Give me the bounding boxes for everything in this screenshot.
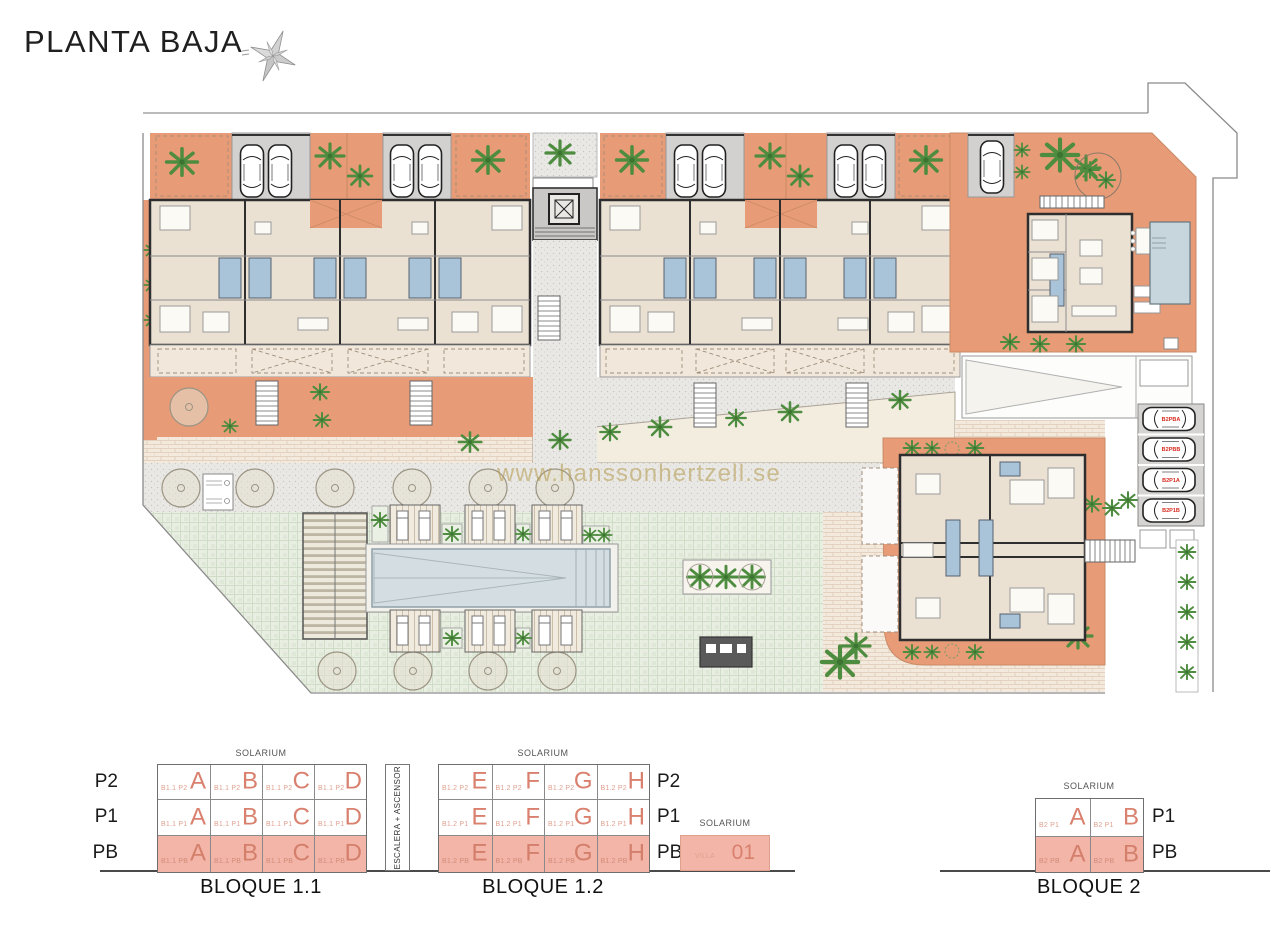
- unit-code: B1.2 P2: [496, 785, 522, 792]
- unit-cell-b12-p2-f: B1.2 P2F: [492, 765, 545, 799]
- solarium-label-villa: SOLARIUM: [665, 818, 785, 828]
- unit-code: B1.1 P1: [214, 821, 240, 828]
- unit-letter: A: [190, 841, 206, 865]
- parking-label: B2P1A: [1162, 478, 1180, 484]
- villa-code: VILLA: [695, 853, 715, 860]
- unit-letter: B: [242, 841, 258, 865]
- unit-letter: D: [345, 769, 362, 793]
- unit-letter: E: [471, 769, 487, 793]
- solarium-label-b12: SOLARIUM: [483, 748, 603, 758]
- unit-code: B1.1 P2: [161, 785, 187, 792]
- unit-code: B1.1 PB: [318, 858, 345, 865]
- unit-code: B1.1 P2: [318, 785, 344, 792]
- unit-letter: E: [471, 841, 487, 865]
- unit-letter: H: [628, 841, 645, 865]
- unit-cell-b12-p1-h: B1.2 P1H: [597, 799, 650, 835]
- unit-cell-b12-p1-f: B1.2 P1F: [492, 799, 545, 835]
- unit-letter: E: [471, 805, 487, 829]
- unit-cell-b12-p2-h: B1.2 P2H: [597, 765, 650, 799]
- unit-cell-b11-p2-a: B1.1 P2A: [158, 765, 210, 799]
- unit-code: B1.1 P1: [318, 821, 344, 828]
- unit-cell-b11-p1-d: B1.1 P1D: [314, 799, 366, 835]
- unit-code: B1.1 P1: [161, 821, 187, 828]
- solarium-label-b11: SOLARIUM: [201, 748, 321, 758]
- unit-letter: B: [1123, 805, 1139, 829]
- bloque-1-2-plan: [600, 133, 960, 377]
- unit-letter: G: [574, 841, 593, 865]
- watermark: www.hanssonhertzell.se: [496, 460, 781, 487]
- unit-cell-b12-pb-h: B1.2 PBH: [597, 835, 650, 872]
- unit-cell-b12-p2-g: B1.2 P2G: [544, 765, 597, 799]
- unit-letter: C: [293, 841, 310, 865]
- unit-letter: G: [574, 805, 593, 829]
- unit-code: B1.2 P2: [442, 785, 468, 792]
- unit-cell-b12-pb-g: B1.2 PBG: [544, 835, 597, 872]
- unit-code: B1.2 PB: [442, 858, 469, 865]
- unit-letter: F: [525, 769, 540, 793]
- parking-label: B2PBB: [1162, 447, 1181, 453]
- unit-cell-b2-pb-a: B2 PBA: [1036, 836, 1090, 872]
- unit-cell-b12-p2-e: B1.2 P2E: [439, 765, 492, 799]
- unit-letter: H: [628, 769, 645, 793]
- unit-cell-b11-p2-c: B1.1 P2C: [262, 765, 314, 799]
- bloque-1-2-diagram: B1.2 P2E B1.2 P2F B1.2 P2G B1.2 P2H B1.2…: [438, 764, 650, 873]
- unit-cell-b12-p1-e: B1.2 P1E: [439, 799, 492, 835]
- unit-letter: B: [1123, 842, 1139, 866]
- floor-label-b2-p1: P1: [1152, 806, 1192, 828]
- parking-label: B2P1B: [1162, 508, 1180, 514]
- unit-code: B1.2 P2: [548, 785, 574, 792]
- unit-letter: A: [1069, 805, 1085, 829]
- unit-code: B1.1 P2: [214, 785, 240, 792]
- unit-cell-b2-p1-a: B2 P1A: [1036, 799, 1090, 836]
- floor-label-b11-pb: PB: [78, 842, 118, 864]
- stair-elevator-core: [533, 133, 597, 463]
- unit-cell-b11-pb-d: B1.1 PBD: [314, 835, 366, 872]
- unit-cell-b11-p1-b: B1.1 P1B: [210, 799, 262, 835]
- unit-code: B2 PB: [1039, 858, 1060, 865]
- bloque-1-1-diagram: B1.1 P2A B1.1 P2B B1.1 P2C B1.1 P2D B1.1…: [157, 764, 367, 873]
- caption-bloque-2: BLOQUE 2: [1004, 876, 1174, 899]
- villa-number: 01: [732, 842, 755, 863]
- unit-letter: G: [574, 769, 593, 793]
- unit-cell-b11-pb-c: B1.1 PBC: [262, 835, 314, 872]
- unit-letter: D: [345, 805, 362, 829]
- unit-cell-b11-p2-b: B1.1 P2B: [210, 765, 262, 799]
- unit-letter: D: [345, 841, 362, 865]
- unit-code: B1.2 P2: [601, 785, 627, 792]
- unit-cell-b2-pb-b: B2 PBB: [1090, 836, 1144, 872]
- unit-code: B1.1 P1: [266, 821, 292, 828]
- unit-code: B1.2 PB: [601, 858, 628, 865]
- unit-code: B2 PB: [1094, 858, 1115, 865]
- unit-code: B1.1 PB: [266, 858, 293, 865]
- unit-cell-b11-p2-d: B1.1 P2D: [314, 765, 366, 799]
- floor-label-b12-p2: P2: [657, 771, 697, 793]
- villa-pool: [1150, 222, 1190, 304]
- floor-label-b2-pb: PB: [1152, 842, 1192, 864]
- unit-letter: H: [628, 805, 645, 829]
- caption-bloque-1-1: BLOQUE 1.1: [176, 876, 346, 899]
- unit-cell-b11-pb-a: B1.1 PBA: [158, 835, 210, 872]
- site-plan: B2PBA B2PBB B2P1A B2P1B www.hanssonhertz…: [0, 0, 1280, 720]
- unit-code: B1.2 P1: [442, 821, 468, 828]
- villa-01-diagram: VILLA 01: [680, 835, 770, 871]
- unit-code: B2 P1: [1094, 822, 1114, 829]
- unit-letter: B: [242, 805, 258, 829]
- east-planting-strip: [1176, 540, 1198, 692]
- unit-letter: C: [293, 805, 310, 829]
- unit-code: B1.2 P1: [548, 821, 574, 828]
- escalera-label: ESCALERA + ASCENSOR: [393, 766, 402, 869]
- unit-letter: A: [1069, 842, 1085, 866]
- unit-letter: F: [525, 805, 540, 829]
- unit-code: B1.2 P1: [496, 821, 522, 828]
- unit-cell-b11-pb-b: B1.1 PBB: [210, 835, 262, 872]
- parking-row-bloque2: B2PBA B2PBB B2P1A B2P1B: [1138, 404, 1204, 526]
- unit-cell-b12-pb-e: B1.2 PBE: [439, 835, 492, 872]
- unit-letter: F: [525, 841, 540, 865]
- unit-cell-b11-p1-c: B1.1 P1C: [262, 799, 314, 835]
- floor-label-b11-p2: P2: [78, 771, 118, 793]
- unit-cell-b12-p1-g: B1.2 P1G: [544, 799, 597, 835]
- unit-code: B1.1 P2: [266, 785, 292, 792]
- unit-code: B1.2 P1: [601, 821, 627, 828]
- bloque-2-diagram: B2 P1A B2 P1B B2 PBA B2 PBB: [1035, 798, 1144, 873]
- unit-cell-b11-p1-a: B1.1 P1A: [158, 799, 210, 835]
- unit-cell-b12-pb-f: B1.2 PBF: [492, 835, 545, 872]
- parking-label: B2PBA: [1162, 417, 1181, 423]
- caption-bloque-1-2: BLOQUE 1.2: [458, 876, 628, 899]
- bbq-unit: [700, 637, 752, 667]
- unit-code: B1.2 PB: [496, 858, 523, 865]
- unit-code: B2 P1: [1039, 822, 1059, 829]
- unit-letter: A: [190, 805, 206, 829]
- unit-letter: A: [190, 769, 206, 793]
- info-sign: [203, 474, 233, 510]
- seating-area: [683, 560, 771, 594]
- solarium-label-b2: SOLARIUM: [1029, 781, 1149, 791]
- unit-letter: C: [293, 769, 310, 793]
- unit-letter: B: [242, 769, 258, 793]
- unit-code: B1.2 PB: [548, 858, 575, 865]
- unit-code: B1.1 PB: [161, 858, 188, 865]
- unit-cell-b2-p1-b: B2 P1B: [1090, 799, 1144, 836]
- floor-label-b11-p1: P1: [78, 806, 118, 828]
- escalera-ascensor-box: ESCALERA + ASCENSOR: [385, 764, 410, 871]
- unit-code: B1.1 PB: [214, 858, 241, 865]
- villa-plan: [950, 133, 1196, 418]
